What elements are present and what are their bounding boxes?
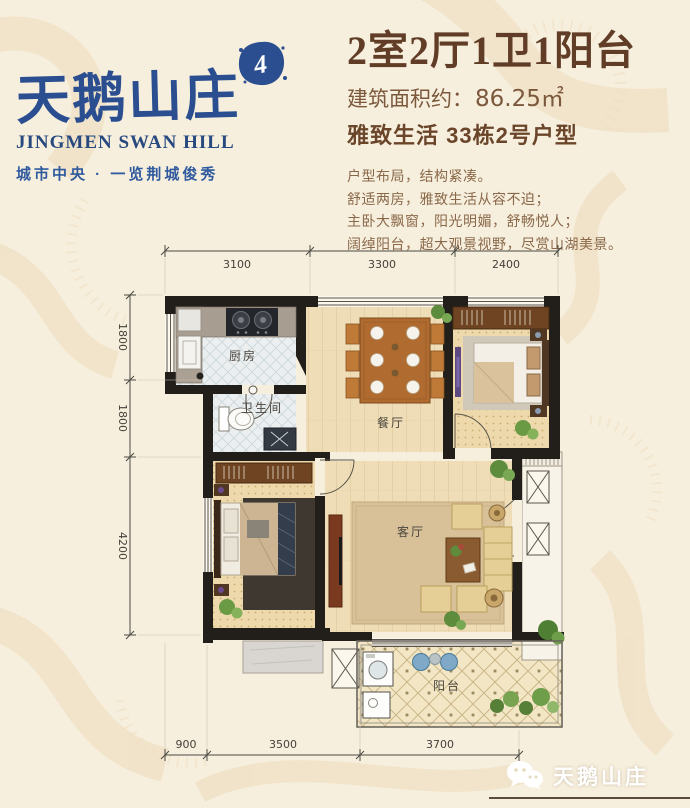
dim-value: 1800 xyxy=(116,323,129,351)
dim-value: 900 xyxy=(176,738,197,751)
dim-value: 3300 xyxy=(368,258,396,271)
footer-divider xyxy=(489,797,690,799)
dim-value: 1800 xyxy=(116,404,129,432)
dimension-left: 1800 1800 4200 xyxy=(116,291,136,639)
entry-opening xyxy=(512,500,522,562)
armchair xyxy=(457,586,487,612)
bathroom-label: 卫生间 xyxy=(241,401,283,415)
balcony-chair xyxy=(413,654,430,671)
kitchen-label: 厨房 xyxy=(229,348,257,363)
balcony-label: 阳台 xyxy=(433,678,461,693)
dimension-bottom: 900 3500 3700 xyxy=(161,738,523,761)
coffee-table xyxy=(446,538,480,582)
dining-label: 餐厅 xyxy=(377,415,405,430)
dim-value: 4200 xyxy=(116,532,129,560)
dim-value: 3500 xyxy=(269,738,297,751)
wechat-icon xyxy=(506,760,544,792)
dim-value: 2400 xyxy=(492,258,520,271)
watermark-text: 天鹅山庄 xyxy=(553,761,649,791)
watermark: 天鹅山庄 xyxy=(506,756,690,796)
fridge xyxy=(178,309,201,331)
column-symbol xyxy=(332,649,359,688)
bay-window-slab xyxy=(243,641,323,673)
dimension-top: 3100 3300 2400 xyxy=(161,245,562,271)
balcony-chair xyxy=(441,654,458,671)
armchair xyxy=(452,504,482,529)
dim-value: 3700 xyxy=(426,738,454,751)
dim-value: 3100 xyxy=(223,258,251,271)
wardrobe xyxy=(216,463,312,483)
floor-plan: 厨房 卫生间 餐厅 xyxy=(0,0,690,808)
living-label: 客厅 xyxy=(397,524,425,539)
armchair xyxy=(421,586,451,612)
